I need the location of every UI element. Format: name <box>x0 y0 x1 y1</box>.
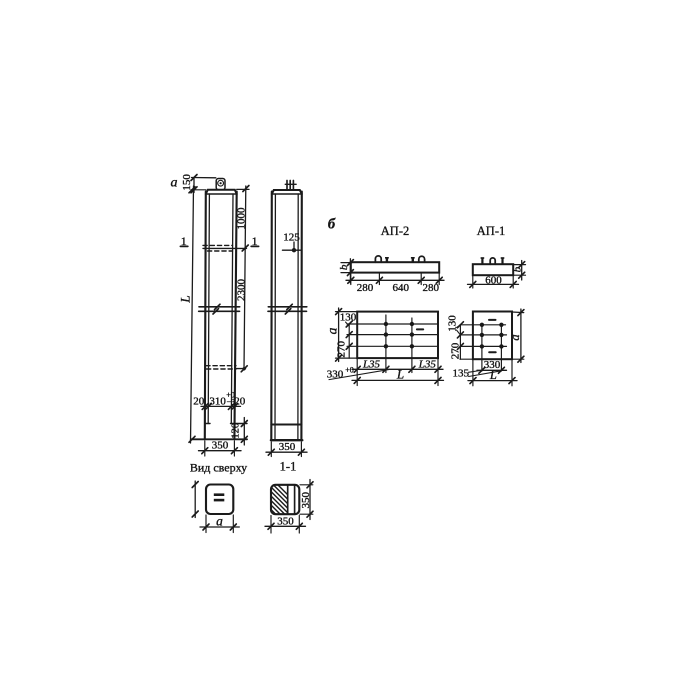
svg-text:b: b <box>338 264 350 270</box>
svg-text:135: 135 <box>453 368 470 380</box>
svg-text:150: 150 <box>181 174 193 191</box>
svg-text:600: 600 <box>485 275 502 287</box>
svg-text:b: b <box>511 266 523 272</box>
svg-text:АП-2: АП-2 <box>381 224 409 238</box>
svg-text:L: L <box>489 368 497 382</box>
svg-text:130: 130 <box>447 315 459 332</box>
svg-text:a: a <box>508 334 522 340</box>
svg-text:130: 130 <box>340 312 357 324</box>
svg-text:640: 640 <box>393 282 410 294</box>
svg-text:a: a <box>216 513 223 528</box>
svg-text:20: 20 <box>234 395 246 407</box>
svg-text:1000: 1000 <box>235 207 247 230</box>
svg-text:1-1: 1-1 <box>280 460 297 474</box>
svg-text:a: a <box>171 176 178 191</box>
svg-text:350: 350 <box>279 441 296 453</box>
svg-text:120: 120 <box>231 423 242 439</box>
svg-text:280: 280 <box>423 282 440 294</box>
svg-text:a: a <box>325 327 340 334</box>
svg-text:270: 270 <box>335 340 347 357</box>
svg-text:280: 280 <box>357 282 374 294</box>
svg-text:310: 310 <box>209 395 226 407</box>
svg-text:350: 350 <box>277 516 294 528</box>
svg-text:АП-1: АП-1 <box>477 224 505 238</box>
svg-text:2300: 2300 <box>235 279 247 302</box>
svg-text:L35: L35 <box>418 359 437 371</box>
svg-text:+0: +0 <box>345 366 354 375</box>
svg-text:L: L <box>177 295 192 303</box>
svg-text:270: 270 <box>450 342 462 359</box>
svg-text:350: 350 <box>212 440 229 452</box>
svg-text:L35: L35 <box>362 359 381 371</box>
svg-text:20: 20 <box>193 395 205 407</box>
svg-text:б: б <box>328 217 336 233</box>
svg-text:350: 350 <box>300 492 312 509</box>
svg-text:Вид сверху: Вид сверху <box>190 460 247 474</box>
svg-text:125: 125 <box>283 231 300 243</box>
svg-text:L: L <box>396 366 404 381</box>
